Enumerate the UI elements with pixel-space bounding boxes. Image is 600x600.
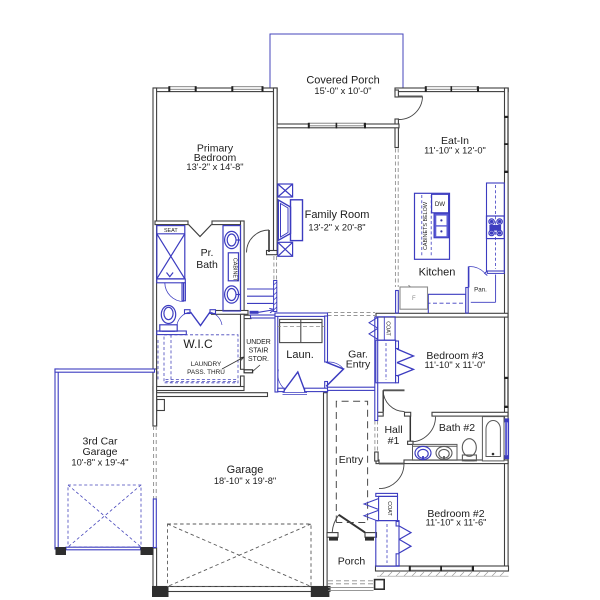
- svg-text:Bath: Bath: [196, 259, 218, 271]
- svg-text:COAT: COAT: [386, 501, 392, 516]
- svg-text:PASS. THRU: PASS. THRU: [187, 369, 225, 376]
- svg-text:11'-10" x 11'-6": 11'-10" x 11'-6": [426, 518, 487, 528]
- svg-text:Garage: Garage: [227, 464, 264, 476]
- svg-text:CABINETS BELOW: CABINETS BELOW: [423, 201, 429, 250]
- svg-text:Kitchen: Kitchen: [419, 267, 456, 279]
- svg-text:SEAT: SEAT: [164, 228, 178, 234]
- svg-text:#1: #1: [388, 435, 400, 447]
- svg-text:COAT: COAT: [385, 321, 391, 336]
- svg-text:STAIR: STAIR: [249, 348, 269, 355]
- svg-text:Porch: Porch: [338, 556, 366, 568]
- svg-text:Family Room: Family Room: [305, 209, 370, 221]
- svg-text:18'-10" x 19'-8": 18'-10" x 19'-8": [214, 476, 276, 486]
- svg-text:Covered Porch: Covered Porch: [306, 75, 379, 87]
- svg-text:Laun.: Laun.: [286, 349, 314, 361]
- svg-text:13'-2" x 20'-8": 13'-2" x 20'-8": [308, 223, 365, 233]
- svg-text:13'-2" x 14'-8": 13'-2" x 14'-8": [186, 162, 243, 172]
- svg-text:Pr.: Pr.: [201, 247, 214, 259]
- svg-text:Entry: Entry: [339, 454, 364, 466]
- svg-text:Bath #2: Bath #2: [439, 422, 475, 434]
- svg-text:Pan.: Pan.: [474, 287, 487, 294]
- svg-text:11'-10" x 11'-0": 11'-10" x 11'-0": [425, 360, 486, 370]
- svg-text:DW: DW: [435, 201, 445, 208]
- svg-text:11'-10" x 12'-0": 11'-10" x 12'-0": [424, 146, 486, 156]
- svg-text:STOR.: STOR.: [248, 356, 269, 363]
- svg-text:UNDER: UNDER: [246, 339, 271, 346]
- svg-text:Entry: Entry: [346, 359, 371, 371]
- svg-text:LAUNDRY: LAUNDRY: [191, 361, 222, 368]
- svg-text:15'-0" x 10'-0": 15'-0" x 10'-0": [314, 86, 371, 96]
- svg-text:F: F: [412, 296, 416, 302]
- svg-text:10'-8" x 19'-4": 10'-8" x 19'-4": [71, 458, 128, 468]
- svg-text:Garage: Garage: [82, 446, 117, 458]
- svg-text:W.I.C: W.I.C: [183, 337, 213, 351]
- svg-text:CABINET: CABINET: [231, 258, 237, 282]
